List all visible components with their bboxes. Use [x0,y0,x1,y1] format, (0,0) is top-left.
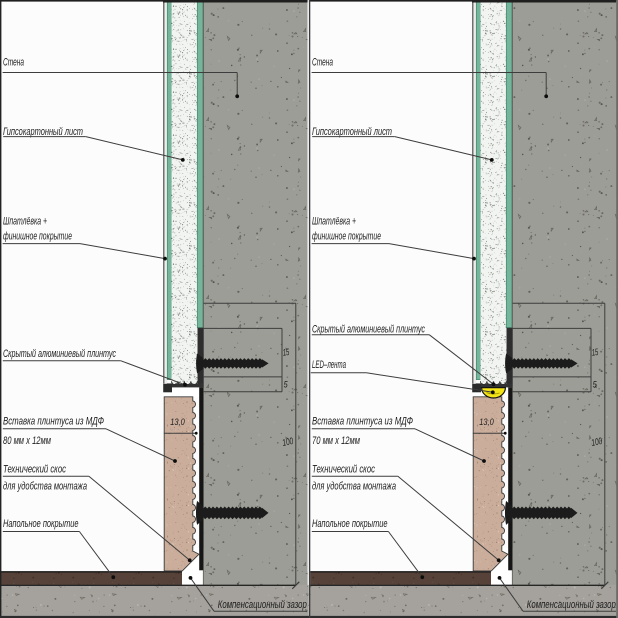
svg-text:Вставка плинтуса из МДФ: Вставка плинтуса из МДФ [312,416,413,428]
svg-text:5: 5 [593,379,598,390]
svg-text:для удобства монтажа: для удобства монтажа [3,480,87,492]
svg-text:Компенсационный зазор: Компенсационный зазор [218,599,307,611]
svg-text:LED–лента: LED–лента [312,359,346,371]
svg-text:финишное покрытие: финишное покрытие [312,231,381,243]
svg-text:Стена: Стена [3,56,24,68]
svg-text:финишное покрытие: финишное покрытие [3,231,72,243]
svg-text:70 мм х 12мм: 70 мм х 12мм [312,435,360,447]
svg-text:для удобства монтажа: для удобства монтажа [312,480,396,492]
svg-text:Скрытый алюминиевый плинтус: Скрытый алюминиевый плинтус [312,323,425,335]
svg-text:Гипсокартонный лист: Гипсокартонный лист [3,126,83,138]
svg-text:Напольное покрытие: Напольное покрытие [3,518,79,530]
svg-text:Вставка плинтуса из МДФ: Вставка плинтуса из МДФ [3,416,104,428]
svg-text:Напольное покрытие: Напольное покрытие [312,518,388,530]
svg-text:13,0: 13,0 [170,417,184,427]
svg-text:Гипсокартонный лист: Гипсокартонный лист [312,126,392,138]
svg-text:Шпатлёвка +: Шпатлёвка + [312,216,356,228]
svg-text:Компенсационный зазор: Компенсационный зазор [527,599,616,611]
svg-text:Стена: Стена [312,56,333,68]
svg-text:80 мм х 12мм: 80 мм х 12мм [3,435,51,447]
svg-text:Скрытый алюминиевый плинтус: Скрытый алюминиевый плинтус [3,348,116,360]
svg-text:Технический скос: Технический скос [312,464,375,476]
svg-text:Шпатлёвка +: Шпатлёвка + [3,216,47,228]
svg-text:5: 5 [284,379,289,390]
svg-text:13,0: 13,0 [479,417,493,427]
svg-text:Технический скос: Технический скос [3,464,66,476]
